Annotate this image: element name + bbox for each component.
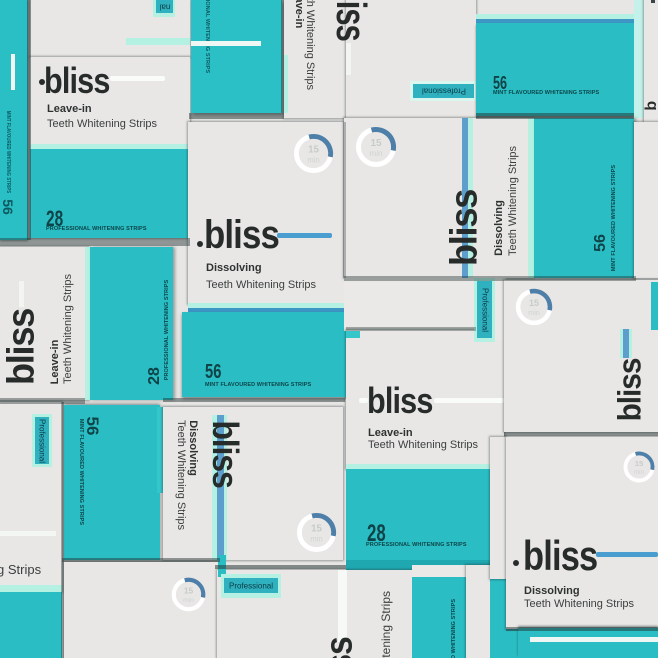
svg-text:min: min (310, 534, 323, 543)
svg-text:min: min (307, 155, 320, 164)
svg-text:min: min (528, 308, 540, 317)
svg-text:15: 15 (184, 586, 194, 596)
svg-text:15: 15 (308, 145, 319, 156)
svg-text:15: 15 (370, 138, 382, 149)
svg-text:min: min (370, 149, 383, 158)
svg-text:15: 15 (311, 524, 322, 535)
svg-text:min: min (183, 597, 194, 604)
svg-text:min: min (634, 469, 645, 476)
svg-text:15: 15 (529, 298, 539, 308)
svg-text:15: 15 (635, 459, 644, 468)
